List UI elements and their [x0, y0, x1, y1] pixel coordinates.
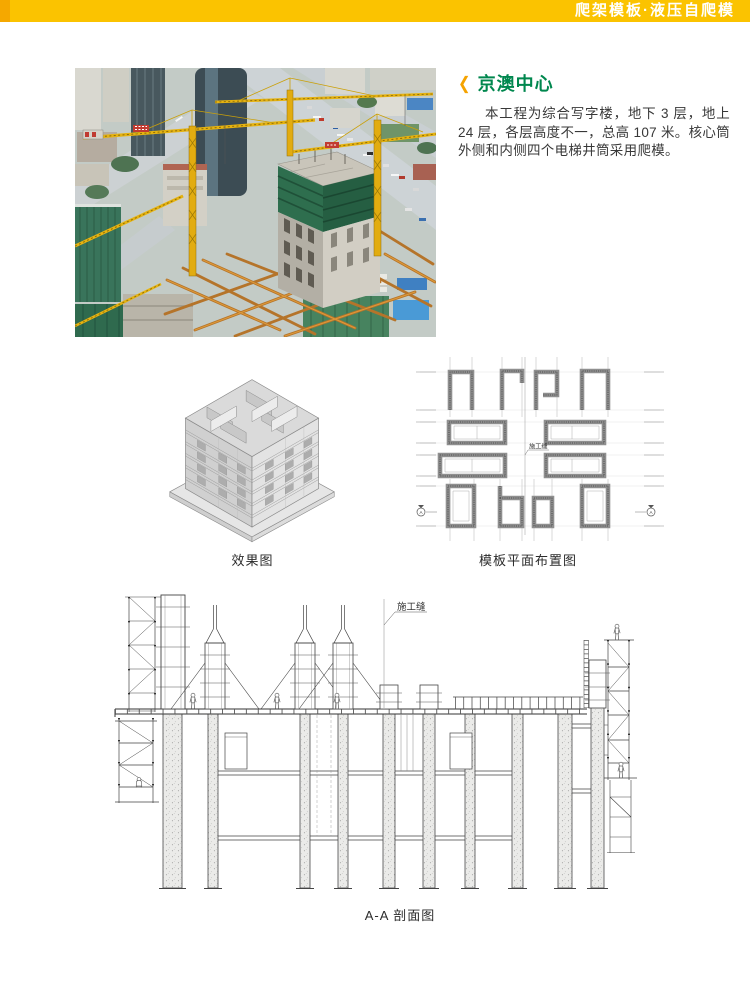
- marker-letter: A: [419, 510, 423, 515]
- project-title: 京澳中心: [478, 70, 554, 96]
- wall-formwork: [156, 595, 610, 709]
- hanging-scaffold-left: [115, 718, 159, 803]
- aerial-photo-graphic: [75, 68, 436, 337]
- plan-caption: 模板平面布置图: [400, 550, 656, 569]
- section-marker-left: A: [417, 505, 437, 516]
- section-drawing: 施工缝: [105, 585, 695, 895]
- floor-slabs: [218, 724, 591, 840]
- plan-drawing: 施工缝 A A: [412, 355, 668, 547]
- effect-drawing-figure: [150, 362, 355, 548]
- catalog-page: 爬架模板·液压自爬模: [0, 0, 750, 983]
- header-section-title: 爬架模板·液压自爬模: [575, 0, 735, 22]
- construction-site-photo: [75, 68, 436, 337]
- joint-label: 施工缝: [529, 443, 548, 451]
- article-heading: ❮ 京澳中心: [458, 70, 730, 96]
- chevron-left-icon: ❮: [458, 73, 471, 94]
- project-description: 本工程为综合写字楼，地下 3 层，地上 24 层，各层高度不一，总高 107 米…: [458, 105, 730, 161]
- article-block: ❮ 京澳中心 本工程为综合写字楼，地下 3 层，地上 24 层，各层高度不一，总…: [458, 70, 730, 174]
- section-marker-right: A: [635, 505, 655, 516]
- plan-drawing-figure: 施工缝 A A: [412, 355, 668, 547]
- effect-drawing: [150, 362, 355, 548]
- header-accent-block: [0, 0, 10, 22]
- wall-segments: [440, 371, 608, 526]
- section-drawing-figure: 施工缝: [105, 585, 695, 895]
- joint-label: 施工缝: [397, 601, 426, 613]
- formwork-left-tall: [156, 595, 190, 709]
- scaffold-left: [125, 597, 163, 712]
- shaft-guides: [317, 715, 413, 836]
- marker-letter: A: [649, 510, 653, 515]
- section-caption: A-A 剖面图: [105, 905, 695, 924]
- effect-caption: 效果图: [150, 550, 355, 569]
- page-header-bar: 爬架模板·液压自爬模: [0, 0, 750, 22]
